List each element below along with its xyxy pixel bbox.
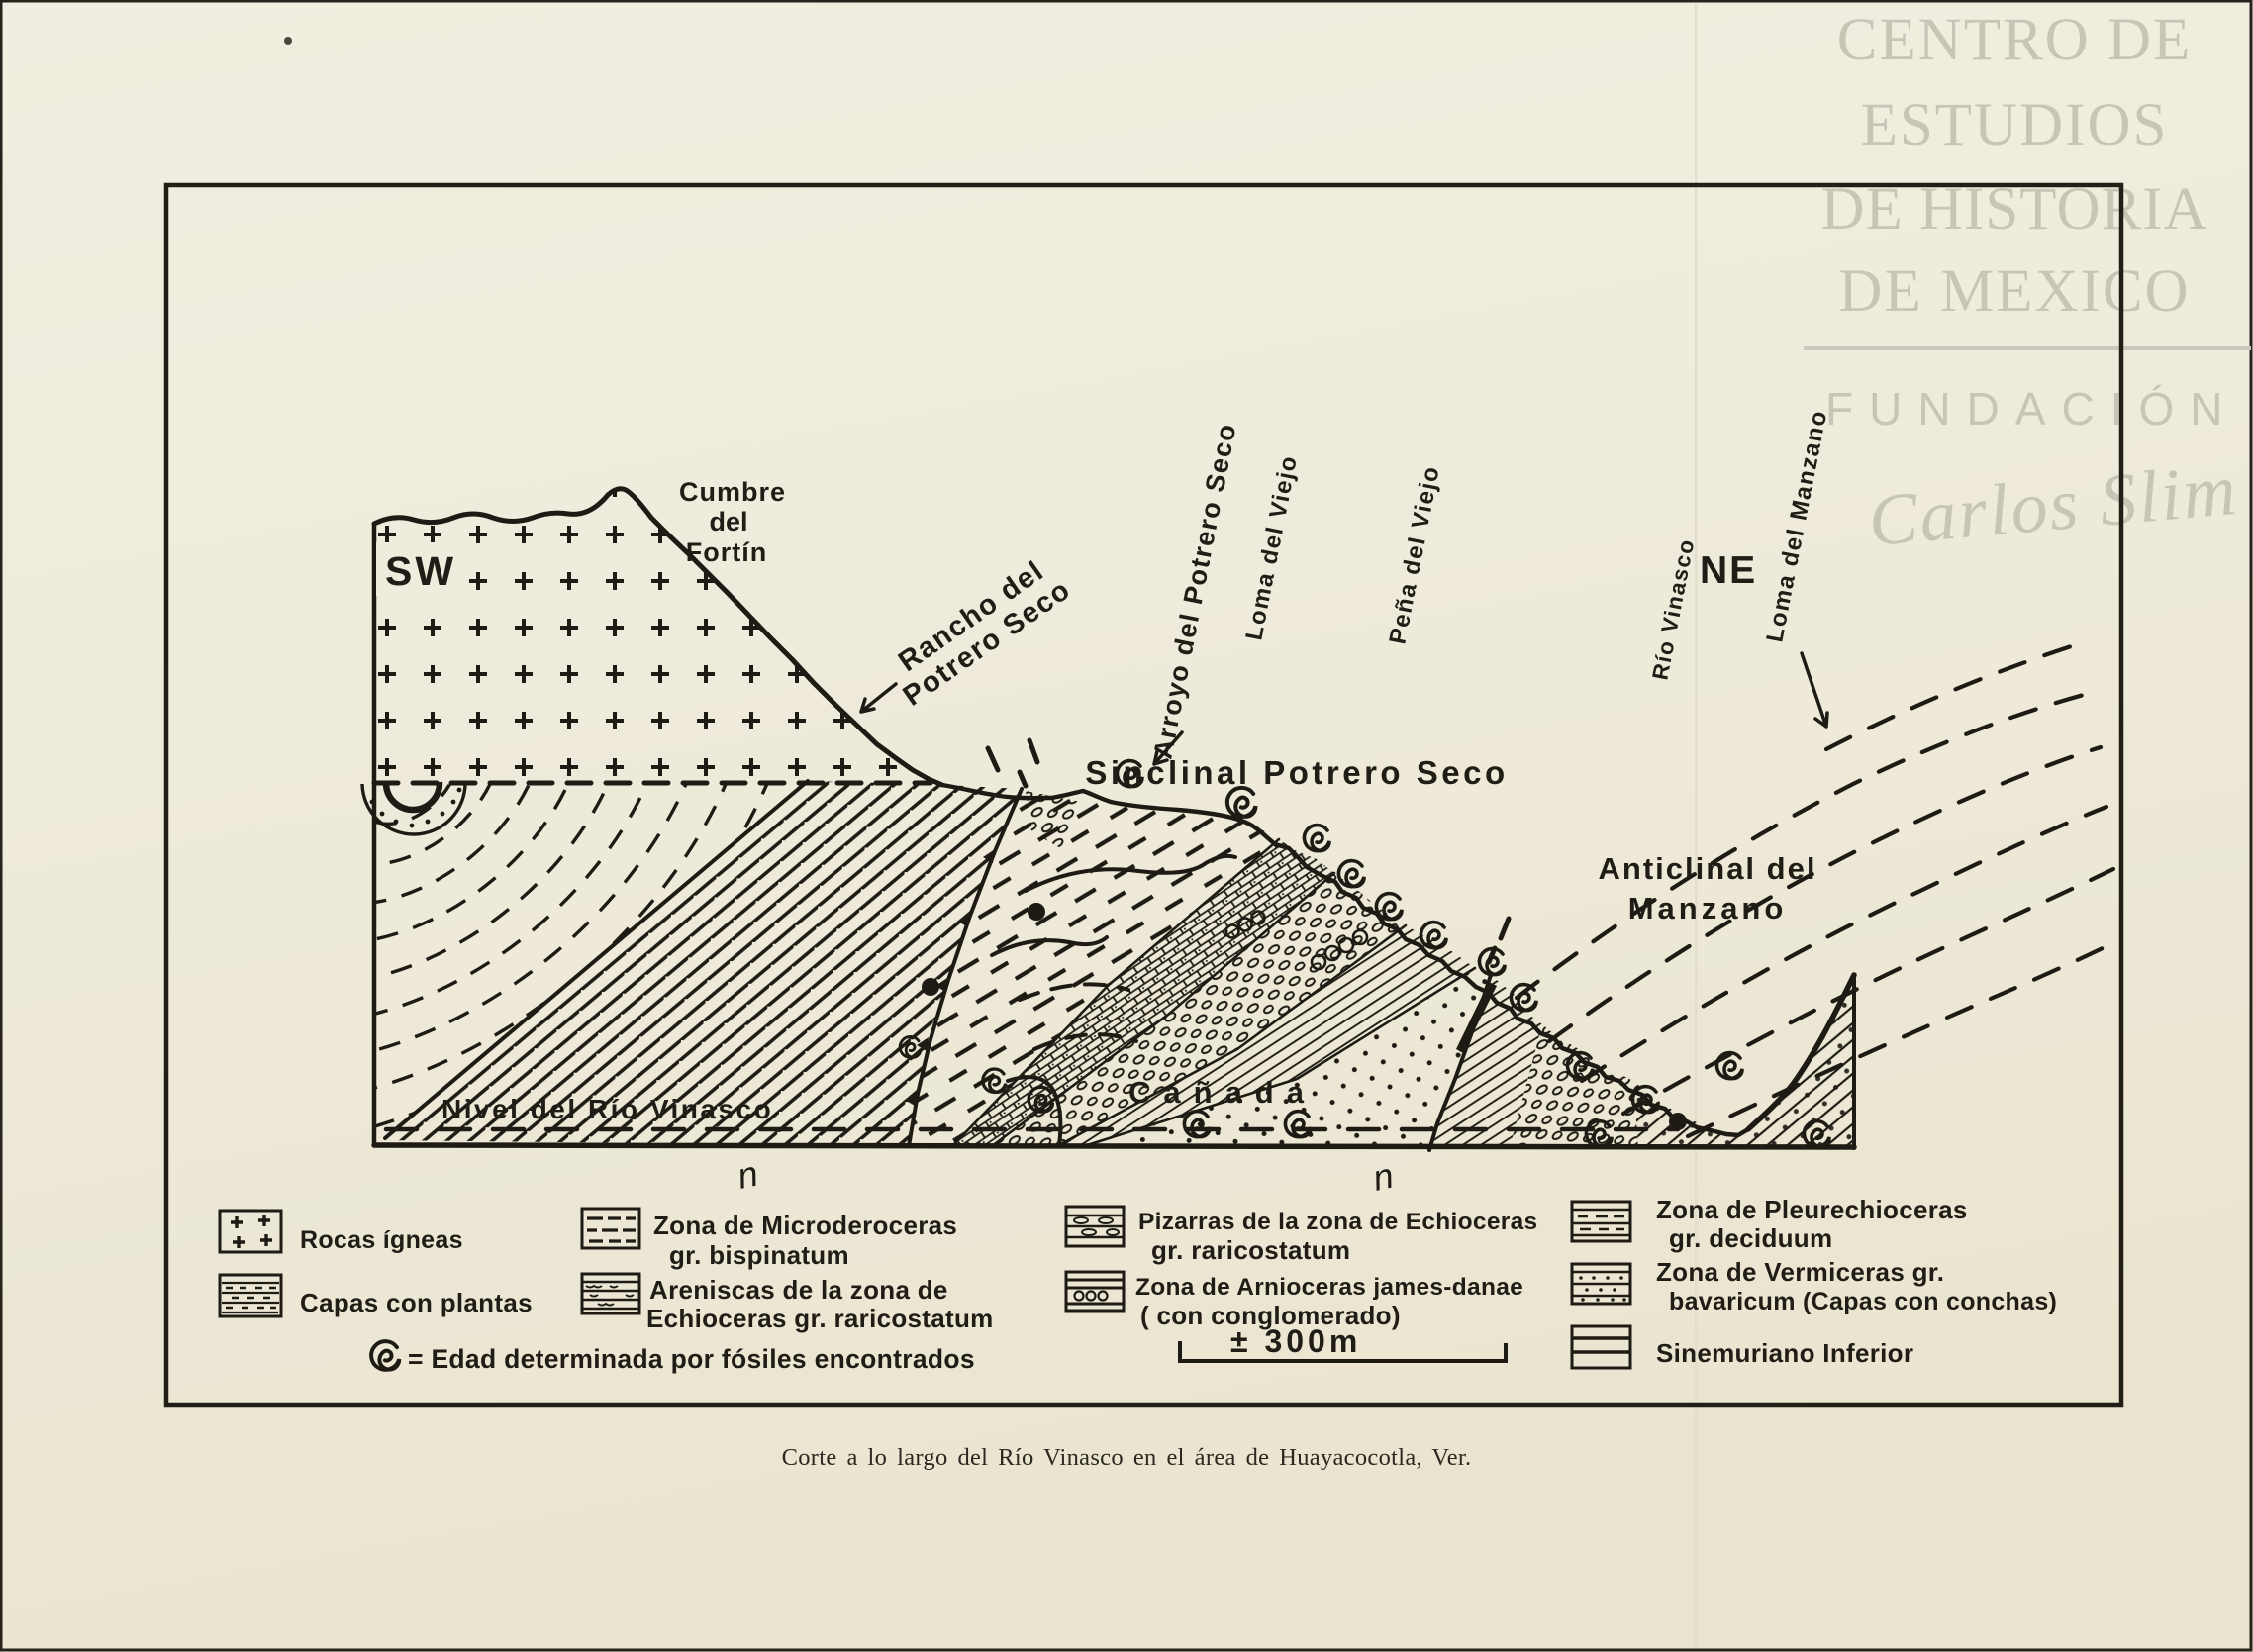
svg-text:Zona de Vermiceras gr.: Zona de Vermiceras gr. [1656,1257,1944,1287]
svg-text:bavaricum (Capas con conchas): bavaricum (Capas con conchas) [1669,1288,2057,1315]
svg-text:Pizarras de la zona de Echioce: Pizarras de la zona de Echioceras [1138,1209,1537,1235]
svg-text:del: del [709,507,747,536]
svg-text:Sinclinal Potrero Seco: Sinclinal Potrero Seco [1085,754,1508,791]
svg-text:Zona de Arnioceras james-danae: Zona de Arnioceras james-danae [1135,1274,1523,1301]
svg-text:gr. deciduum: gr. deciduum [1669,1223,1832,1253]
svg-text:Zona de Pleurechioceras: Zona de Pleurechioceras [1656,1195,1968,1224]
svg-text:Anticlinal del: Anticlinal del [1599,851,1817,886]
svg-text:Manzano: Manzano [1628,891,1788,925]
svg-text:Rocas ígneas: Rocas ígneas [300,1226,463,1254]
svg-text:Capas con plantas: Capas con plantas [300,1288,533,1317]
svg-text:± 300m: ± 300m [1230,1323,1361,1359]
svg-text:SW: SW [385,548,456,594]
svg-text:ESTUDIOS: ESTUDIOS [1861,92,2169,158]
svg-text:Areniscas de la zona de: Areniscas de la zona de [649,1275,948,1305]
svg-text:NE: NE [1700,549,1757,592]
svg-text:gr. raricostatum: gr. raricostatum [1151,1235,1350,1265]
svg-text:gr. bispinatum: gr. bispinatum [669,1240,849,1270]
svg-text:Sinemuriano Inferior: Sinemuriano Inferior [1656,1338,1913,1368]
svg-text:Echioceras gr. raricostatum: Echioceras gr. raricostatum [646,1304,994,1333]
svg-text:Cañada: Cañada [1128,1075,1317,1110]
svg-text:Zona de Microderoceras: Zona de Microderoceras [653,1211,957,1240]
svg-text:Nivel del Río Vinasco: Nivel del Río Vinasco [441,1094,773,1124]
svg-text:= Edad determinada por fósiles: = Edad determinada por fósiles encontrad… [408,1344,975,1374]
svg-text:Fortín: Fortín [686,537,767,567]
svg-text:Corte a lo largo del Río Vinas: Corte a lo largo del Río Vinasco en el á… [782,1444,1472,1471]
svg-text:DE MEXICO: DE MEXICO [1838,258,2190,325]
svg-text:CENTRO DE: CENTRO DE [1837,7,2193,73]
svg-text:Cumbre: Cumbre [679,477,786,507]
svg-text:FUNDACIÓN: FUNDACIÓN [1825,383,2238,435]
